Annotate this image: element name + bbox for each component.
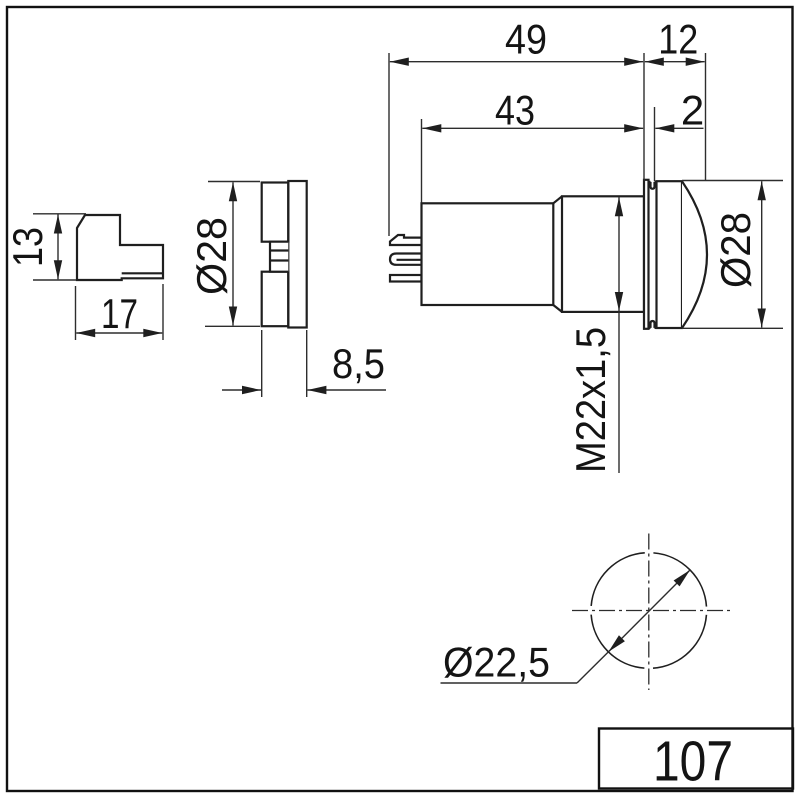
bracket-height-label: 13 (4, 227, 51, 267)
flange-thickness-label: 2 (681, 87, 704, 134)
technical-drawing-page: 13 17 Ø28 8,5 (0, 0, 800, 800)
housing-body (422, 203, 554, 305)
flange-plate (644, 180, 649, 329)
bracket-width-label: 17 (101, 290, 138, 337)
cap-depth-label: 8,5 (332, 340, 385, 387)
body-length-label: 43 (495, 87, 535, 134)
hole-diameter-label: Ø22,5 (443, 639, 550, 686)
sheet-border (7, 7, 793, 791)
total-length-label: 49 (505, 16, 547, 63)
dim-bracket-width: 17 (76, 284, 164, 340)
lens-diameter-label: Ø28 (712, 212, 759, 288)
dim-cap-diameter: Ø28 (188, 182, 260, 327)
view-main-assembly: 49 12 43 2 M22x1,5 Ø28 (389, 16, 783, 474)
view-mounting-hole: Ø22,5 (441, 534, 731, 691)
dim-hole-diameter: Ø22,5 (441, 570, 691, 686)
cap-base-outline (288, 181, 306, 328)
dim-bracket-height: 13 (4, 214, 86, 280)
housing-chamfer-bottom (553, 305, 562, 312)
dim-cap-depth: 8,5 (222, 330, 386, 397)
cap-diameter-label: Ø28 (188, 217, 235, 295)
title-block: 107 (599, 729, 793, 794)
threaded-section (562, 196, 644, 312)
view-contact-element: 13 17 (4, 214, 163, 340)
groove-slot-top (651, 182, 655, 189)
part-number: 107 (653, 730, 733, 794)
cap-knurl-bottom (262, 272, 289, 327)
contact-element-outline (77, 215, 163, 280)
front-length-label: 12 (658, 16, 698, 63)
thread-label: M22x1,5 (567, 327, 614, 473)
view-lens-cap: Ø28 8,5 (188, 181, 386, 397)
groove-slot-bottom (651, 321, 655, 328)
lens-bezel (657, 181, 683, 328)
housing-chamfer-top (553, 196, 562, 203)
lens-dome (682, 181, 707, 328)
cap-knurl-top (262, 183, 289, 242)
cap-notch (270, 242, 288, 272)
technical-drawing: 13 17 Ø28 8,5 (0, 0, 800, 800)
terminal-top (390, 235, 422, 245)
terminal-bottom (390, 275, 422, 282)
